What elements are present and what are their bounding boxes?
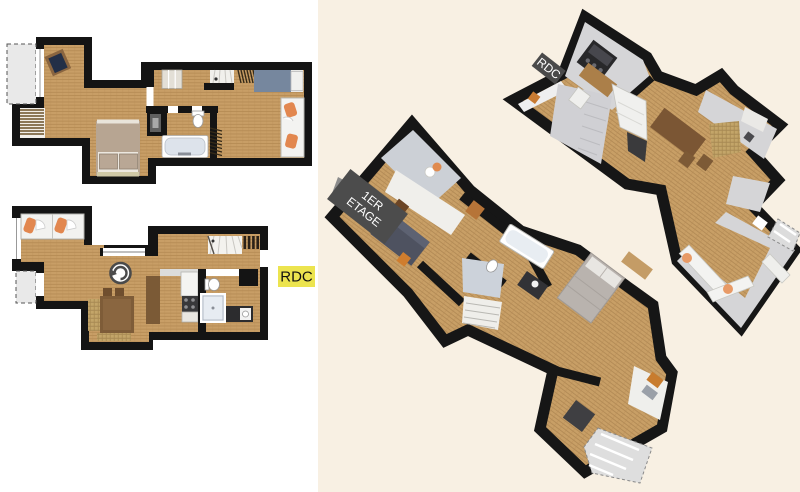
svg-text:RDC: RDC	[280, 269, 313, 286]
